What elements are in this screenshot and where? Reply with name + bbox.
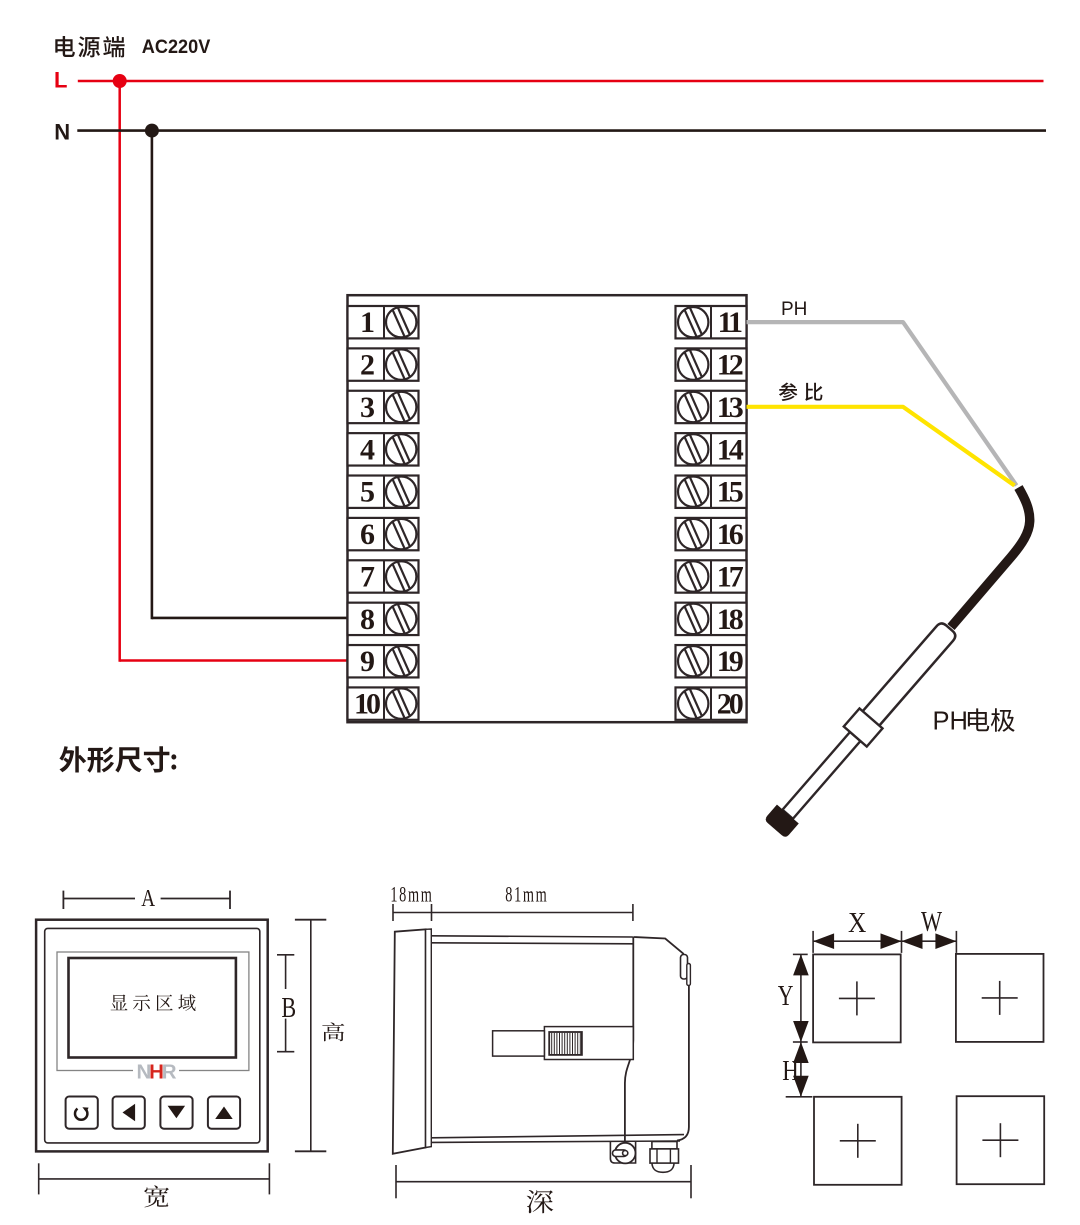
svg-text:PH: PH (933, 708, 968, 736)
svg-text:81mm: 81mm (505, 882, 548, 907)
svg-text:Y: Y (778, 979, 794, 1012)
svg-text:A: A (141, 885, 155, 912)
svg-text:14: 14 (717, 433, 744, 466)
svg-text:15: 15 (717, 476, 743, 509)
svg-text:20: 20 (717, 688, 743, 721)
svg-text:5: 5 (360, 476, 374, 509)
svg-text:B: B (281, 994, 296, 1024)
svg-text:18: 18 (717, 603, 743, 636)
svg-text:2: 2 (360, 349, 374, 382)
svg-text:8: 8 (360, 603, 374, 636)
svg-text:17: 17 (717, 560, 744, 593)
svg-text:10: 10 (354, 688, 380, 721)
svg-text:H: H (782, 1054, 799, 1086)
svg-text:NHR: NHR (137, 1060, 177, 1083)
svg-text:3: 3 (360, 391, 374, 424)
svg-text:W: W (921, 905, 943, 937)
svg-text:X: X (848, 907, 867, 939)
svg-text:1: 1 (360, 306, 374, 339)
svg-text:PH: PH (781, 299, 807, 320)
svg-text:11: 11 (718, 306, 742, 339)
svg-text:18mm: 18mm (390, 882, 433, 907)
svg-text:9: 9 (360, 645, 374, 678)
svg-text:13: 13 (717, 391, 743, 424)
svg-text:L: L (54, 67, 67, 92)
svg-text:12: 12 (717, 349, 743, 382)
svg-text:N: N (54, 120, 70, 145)
svg-text:19: 19 (717, 645, 743, 678)
svg-text:16: 16 (717, 518, 744, 551)
svg-text:AC220V: AC220V (142, 37, 211, 58)
